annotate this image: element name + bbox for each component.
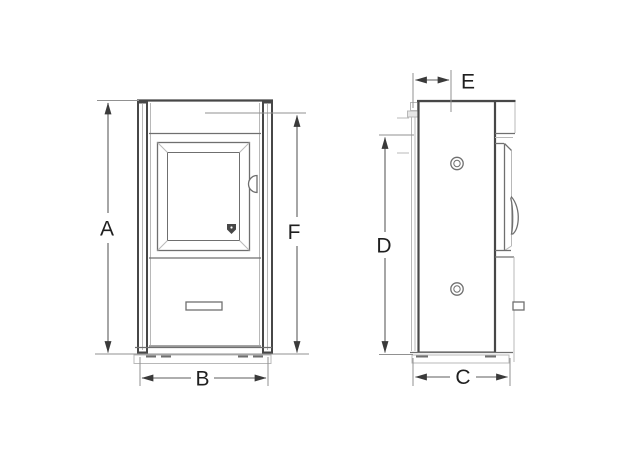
dimension-d: D (376, 135, 414, 355)
side-view (397, 101, 524, 363)
side-door-chamfer-top (505, 144, 512, 151)
dimension-b: B (140, 357, 268, 391)
dim-b-label: B (195, 368, 209, 391)
dim-f-label: F (288, 221, 301, 244)
dimension-a: A (97, 101, 139, 353)
drawer-handle-slot (186, 302, 222, 310)
dim-a-label: A (100, 218, 114, 241)
side-body (419, 102, 496, 353)
door-latch-pin (230, 226, 232, 228)
stove-dimension-drawing: A B F D C E (0, 0, 624, 460)
side-door-chamfer-bottom (505, 246, 512, 251)
heat-shield-tab (408, 111, 420, 117)
dim-c-label: C (455, 366, 470, 389)
front-view (95, 101, 309, 364)
flue-collar-step (411, 103, 418, 111)
dim-d-label: D (376, 235, 391, 258)
air-control-knob (513, 302, 524, 310)
diagram-canvas: A B F D C E (0, 0, 624, 460)
dim-e-label: E (461, 71, 475, 94)
